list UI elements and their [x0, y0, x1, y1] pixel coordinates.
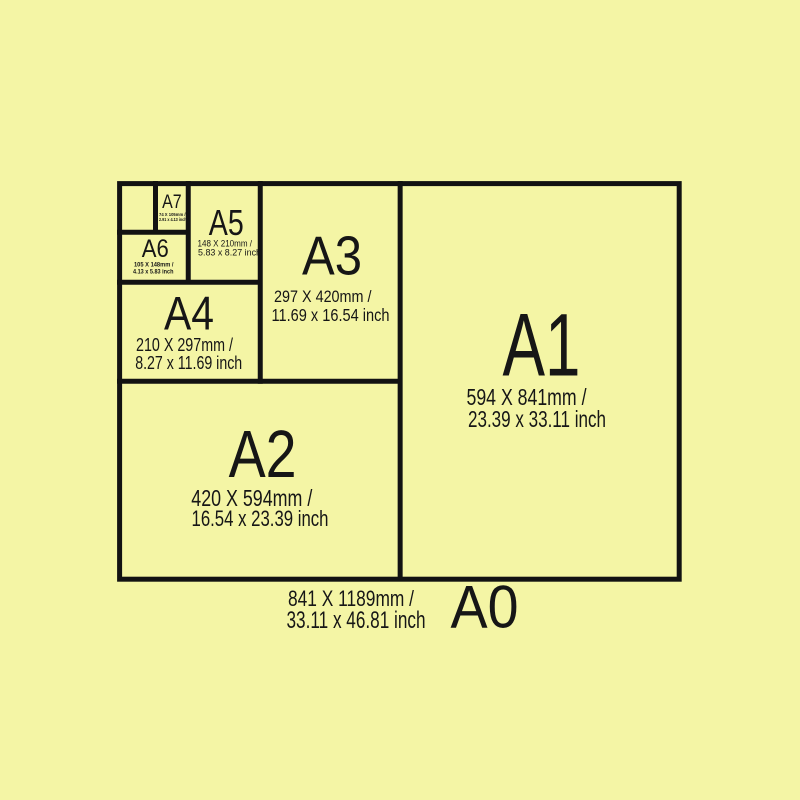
svg-text:105 X 148mm /: 105 X 148mm /	[134, 262, 174, 269]
svg-text:4.13 x 5.83 inch: 4.13 x 5.83 inch	[133, 269, 174, 276]
svg-text:A3: A3	[302, 226, 362, 287]
svg-text:A0: A0	[451, 574, 519, 641]
svg-text:A5: A5	[209, 202, 244, 243]
svg-text:A4: A4	[164, 287, 214, 340]
svg-text:2.91 x 4.13 inch: 2.91 x 4.13 inch	[159, 217, 187, 222]
svg-text:23.39 x 33.11 inch: 23.39 x 33.11 inch	[468, 406, 606, 432]
svg-text:297 X 420mm /: 297 X 420mm /	[274, 288, 372, 306]
svg-text:210 X 297mm /: 210 X 297mm /	[136, 335, 233, 355]
svg-text:8.27 x 11.69 inch: 8.27 x 11.69 inch	[135, 353, 242, 373]
svg-text:33.11 x 46.81 inch: 33.11 x 46.81 inch	[287, 607, 426, 634]
svg-text:16.54 x 23.39 inch: 16.54 x 23.39 inch	[192, 506, 329, 531]
svg-text:11.69 x 16.54 inch: 11.69 x 16.54 inch	[272, 305, 390, 325]
svg-text:A1: A1	[503, 295, 581, 395]
svg-text:A7: A7	[162, 192, 182, 213]
svg-text:5.83 x 8.27 inch: 5.83 x 8.27 inch	[198, 247, 261, 257]
svg-text:A6: A6	[142, 236, 169, 263]
svg-text:A2: A2	[229, 418, 297, 492]
